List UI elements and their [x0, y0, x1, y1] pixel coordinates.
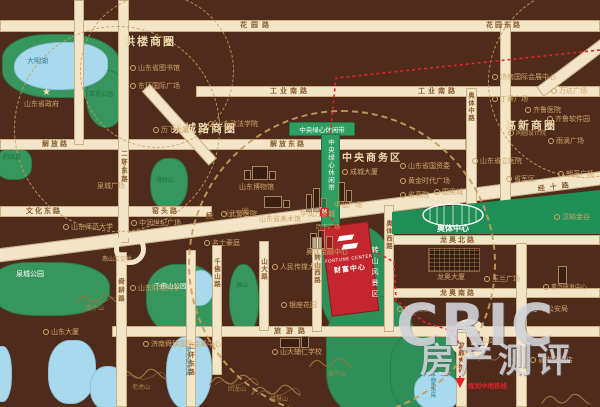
poi-aoti-finance-center: 奥体金融中心 [306, 249, 348, 256]
poi-military-region: 省军区 [506, 176, 535, 183]
poi-mingshi-haoting: 名士豪庭 [204, 240, 240, 247]
metro-line-label: 规划中地铁线 [468, 383, 507, 390]
poi-wanda-plaza: 万达广场 [551, 88, 587, 95]
poi-renmin-media-tower: 人民传媒大厦 [272, 264, 322, 271]
poi-wanxiangcheng: 华润万象城 [300, 211, 335, 218]
poi-yulan-plaza: 玉兰广场 [484, 276, 520, 283]
road-label-shungeng: 舜耕路 [117, 278, 124, 304]
poi-shandong-hotel: 山东大厦 [43, 329, 79, 336]
poi-qilu-hospital: 齐鲁医院 [525, 107, 561, 114]
poi-intl-expo-center: 济南国际会展中心 [492, 74, 556, 81]
poi-dinghao-plaza: 丁豪广场 [492, 96, 528, 103]
poi-langmao-plaza: 朗茂广场 [558, 171, 594, 178]
poi-zhongrun-plaza: 中润世纪广场 [131, 220, 181, 227]
watermark-sub: 房产测评 [420, 344, 576, 378]
park-label-baotuquan: 趵突泉 [3, 155, 21, 161]
poi-yudi-plaza: 雨滴广场 [548, 138, 584, 145]
road-label-huayuan: 花园路 [240, 22, 273, 29]
poi-shungeng-expo: 济南舜耕国际会展中心 [143, 341, 221, 348]
poi-furen-school: 山大辅仁学校 [272, 349, 322, 356]
poi-guoaocheng: 国奥城 [434, 189, 463, 196]
road-label-longao-north: 龙奥北路 [440, 237, 476, 244]
mountain-label-muniushan: 母牛山 [328, 372, 346, 378]
poi-hanyu-jingu: 汉峪金谷 [554, 214, 590, 221]
poi-golden-age-plaza: 黄金时代广场 [400, 178, 450, 185]
mountain-label-yanzishan: 燕子山 [86, 306, 104, 312]
poi-sinotruk-rd-center: 重汽研发中心 [543, 284, 587, 291]
poi-quancheng-square: 泉城广场 [97, 183, 125, 190]
poi-zhonghong-plaza: 中弘广场 [334, 202, 362, 209]
aoti-finance-building-icon [310, 230, 333, 249]
furen-school-building-icon [280, 336, 309, 348]
poi-donghuan-plaza: 东环国际广场 [130, 83, 180, 90]
park-label-hongshan: 洪山 [236, 283, 248, 289]
park-label-maolingshan: 茂岭山 [156, 178, 174, 184]
poi-longao-tower: 龙奥大厦 [437, 274, 465, 281]
junction-label-yanshan: 燕山立交桥 [102, 257, 132, 263]
poi-tongyuan-institute: 同圆设计院 [508, 130, 546, 137]
park-label-daminghu: 大明湖 [27, 58, 48, 65]
road-label-erhuan-north: 二环东路 [120, 150, 127, 184]
gov-star-icon: ★ [42, 88, 51, 98]
road-label-lvyou: 旅游路 [274, 328, 310, 335]
poi-qilu-software-park: 齐鲁软件园 [547, 116, 590, 123]
poi-provincial-hospital: 山东省立医院 [472, 158, 522, 165]
park-label-quancheng: 泉城公园 [16, 271, 44, 278]
road-label-huayuan-east: 花园东路 [486, 22, 522, 29]
poi-shandong-normal-univ: 山东师范大学 [63, 224, 113, 231]
poi-shandong-museum: 山东博物馆 [239, 184, 274, 191]
road-label-aoti-middle: 奥体中路 [467, 92, 474, 122]
road-label-yaotou: 窑头路 [152, 208, 179, 215]
poi-lixia-tower: 历下大厦 [153, 127, 189, 134]
road-label-shanda: 山大路 [260, 258, 267, 281]
poi-art-gallery: 山东省美术馆 [259, 216, 301, 223]
location-map: 中央绿心休闲带 中央绿心休闲带 奥体中心 转山风景区 FORTUNE CENTE… [0, 0, 600, 407]
poi-provincial-court: 省高院 [400, 192, 429, 199]
zhonghong-building-icon [338, 182, 352, 202]
fortune-center-name-cn: 财富中心 [334, 262, 367, 276]
poi-zhengfa-university: 山东政法学院 [208, 121, 258, 128]
museum-building-icon [244, 166, 276, 180]
road-label-qianfoshan: 千佛山路 [213, 258, 220, 288]
poi-guoziwei: 山东省国资委 [400, 163, 450, 170]
mountain-label-fohuishan: 佛慧山 [270, 397, 288, 403]
road-label-gongyenan-2: 工业南路 [418, 88, 458, 95]
poi-chengcheng-tower: 成城大厦 [342, 169, 378, 176]
road-label-jiefang-east: 解放东路 [270, 141, 306, 148]
road-label-gongyenan-1: 工业南路 [270, 88, 310, 95]
poi-provincial-gov: 山东省政府 [24, 101, 59, 108]
lake-label-jiangshuiquan: 浆水泉水库 [184, 346, 190, 376]
mountain-label-huilongshan: 回龙山 [228, 387, 246, 393]
art-gallery-building-icon [264, 196, 290, 208]
fengjingqu-label: 转山风景区 [371, 246, 378, 301]
poi-lixia-plaza: 历下广场 [316, 225, 340, 231]
poi-armed-police-hospital: 武警医院 [221, 211, 257, 218]
aoti-center-label: 奥体中心 [437, 225, 469, 233]
zhongqi-tower-icon [558, 266, 567, 284]
district-label-honglou: 洪楼商圈 [124, 36, 176, 47]
district-label-cbd: 中央商务区 [342, 154, 402, 164]
poi-yinzuo-garden: 银座花园 [281, 302, 317, 309]
road-label-wenhua-east: 文化东路 [26, 208, 62, 215]
road-label-aoti-west: 奥体西路 [385, 220, 392, 250]
park-label-baihua: 百花公园 [89, 92, 113, 98]
poi-provincial-library: 山东省图书馆 [130, 65, 180, 72]
mountain-label-laohushan: 老虎山 [132, 385, 150, 391]
poi-finance-university: 山东财经大学 [130, 285, 180, 292]
longao-tower-building-icon [428, 248, 480, 272]
road-label-jiefang: 解放路 [42, 141, 69, 148]
